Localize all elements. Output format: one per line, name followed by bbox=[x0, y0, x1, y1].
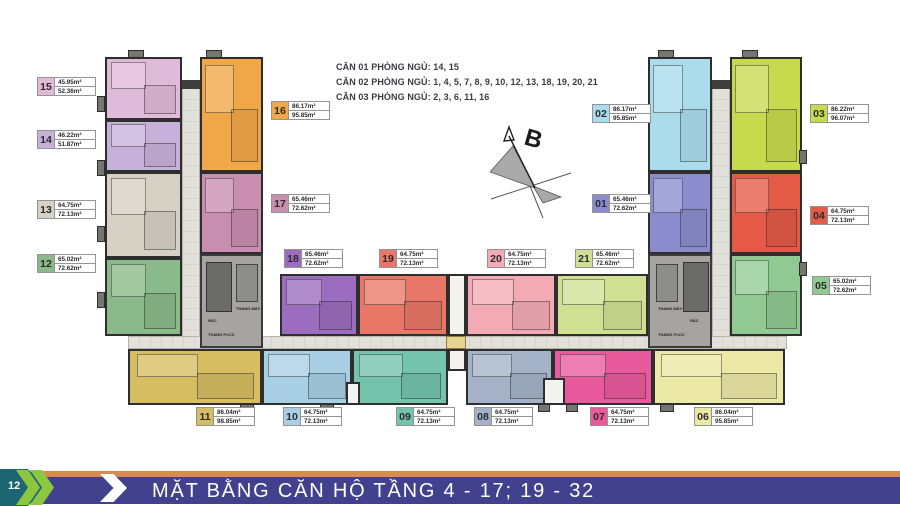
unit-area-gross: 72.62m² bbox=[302, 259, 342, 267]
unit-number: 13 bbox=[38, 201, 55, 218]
unit-area-net: 65.02m² bbox=[55, 255, 95, 264]
unit-area-net: 65.46m² bbox=[302, 250, 342, 259]
unit-area-gross: 72.13m² bbox=[608, 417, 648, 425]
unit-03-label: 03 86.22m² 96.07m² bbox=[810, 104, 869, 123]
unit-area-gross: 72.62m² bbox=[55, 264, 95, 272]
unit-area-gross: 96.07m² bbox=[828, 114, 868, 122]
unit-area-gross: 72.62m² bbox=[289, 204, 329, 212]
unit-number: 09 bbox=[397, 408, 414, 425]
unit-area-net: 65.02m² bbox=[830, 277, 870, 286]
unit-number: 15 bbox=[38, 78, 55, 95]
unit-number: 07 bbox=[591, 408, 608, 425]
unit-area-gross: 72.62m² bbox=[830, 286, 870, 294]
unit-number: 21 bbox=[576, 250, 593, 267]
unit-labels: 01 65.46m² 72.62m² 02 86.17m² 95.85m² 03… bbox=[0, 0, 900, 460]
unit-04-label: 04 64.75m² 72.13m² bbox=[810, 206, 869, 225]
unit-06-label: 06 86.04m² 95.85m² bbox=[694, 407, 753, 426]
unit-number: 06 bbox=[695, 408, 712, 425]
unit-01-label: 01 65.46m² 72.62m² bbox=[592, 194, 651, 213]
unit-area-net: 65.46m² bbox=[610, 195, 650, 204]
unit-area-gross: 72.13m² bbox=[55, 210, 95, 218]
unit-number: 17 bbox=[272, 195, 289, 212]
unit-07-label: 07 64.75m² 72.13m² bbox=[590, 407, 649, 426]
unit-number: 14 bbox=[38, 131, 55, 148]
unit-number: 10 bbox=[284, 408, 301, 425]
unit-number: 01 bbox=[593, 195, 610, 212]
unit-area-net: 64.75m² bbox=[608, 408, 648, 417]
unit-area-gross: 72.13m² bbox=[301, 417, 341, 425]
unit-area-gross: 72.13m² bbox=[828, 216, 868, 224]
unit-13-label: 13 64.75m² 72.13m² bbox=[37, 200, 96, 219]
unit-area-net: 86.17m² bbox=[610, 105, 650, 114]
unit-number: 02 bbox=[593, 105, 610, 122]
unit-area-net: 46.22m² bbox=[55, 131, 95, 140]
unit-area-gross: 72.13m² bbox=[397, 259, 437, 267]
unit-area-gross: 52.36m² bbox=[55, 87, 95, 95]
unit-area-gross: 51.87m² bbox=[55, 140, 95, 148]
unit-area-net: 45.95m² bbox=[55, 78, 95, 87]
unit-area-gross: 72.13m² bbox=[505, 259, 545, 267]
unit-area-net: 64.75m² bbox=[492, 408, 532, 417]
unit-09-label: 09 64.75m² 72.13m² bbox=[396, 407, 455, 426]
unit-21-label: 21 65.46m² 72.62m² bbox=[575, 249, 634, 268]
unit-area-net: 86.04m² bbox=[214, 408, 254, 417]
unit-number: 05 bbox=[813, 277, 830, 294]
unit-14-label: 14 46.22m² 51.87m² bbox=[37, 130, 96, 149]
unit-area-gross: 98.85m² bbox=[214, 417, 254, 425]
unit-11-label: 11 86.04m² 98.85m² bbox=[196, 407, 255, 426]
unit-number: 18 bbox=[285, 250, 302, 267]
unit-15-label: 15 45.95m² 52.36m² bbox=[37, 77, 96, 96]
unit-number: 16 bbox=[272, 102, 289, 119]
unit-20-label: 20 64.75m² 72.13m² bbox=[487, 249, 546, 268]
unit-number: 19 bbox=[380, 250, 397, 267]
unit-area-net: 86.04m² bbox=[712, 408, 752, 417]
unit-area-gross: 72.62m² bbox=[593, 259, 633, 267]
unit-number: 08 bbox=[475, 408, 492, 425]
unit-number: 12 bbox=[38, 255, 55, 272]
unit-area-net: 64.75m² bbox=[397, 250, 437, 259]
page-number: 12 bbox=[8, 480, 20, 492]
unit-02-label: 02 86.17m² 95.85m² bbox=[592, 104, 651, 123]
unit-12-label: 12 65.02m² 72.62m² bbox=[37, 254, 96, 273]
unit-number: 03 bbox=[811, 105, 828, 122]
unit-area-net: 64.75m² bbox=[828, 207, 868, 216]
unit-10-label: 10 64.75m² 72.13m² bbox=[283, 407, 342, 426]
unit-19-label: 19 64.75m² 72.13m² bbox=[379, 249, 438, 268]
unit-08-label: 08 64.75m² 72.13m² bbox=[474, 407, 533, 426]
unit-area-gross: 72.62m² bbox=[610, 204, 650, 212]
unit-area-net: 64.75m² bbox=[55, 201, 95, 210]
unit-05-label: 05 65.02m² 72.62m² bbox=[812, 276, 871, 295]
page-title: MẶT BẰNG CĂN HỘ TẦNG 4 - 17; 19 - 32 bbox=[152, 480, 595, 503]
unit-area-gross: 95.85m² bbox=[712, 417, 752, 425]
unit-16-label: 16 86.17m² 95.85m² bbox=[271, 101, 330, 120]
unit-area-net: 86.22m² bbox=[828, 105, 868, 114]
unit-area-net: 65.46m² bbox=[289, 195, 329, 204]
unit-number: 11 bbox=[197, 408, 214, 425]
unit-17-label: 17 65.46m² 72.62m² bbox=[271, 194, 330, 213]
unit-area-gross: 72.13m² bbox=[492, 417, 532, 425]
unit-number: 20 bbox=[488, 250, 505, 267]
unit-area-net: 64.75m² bbox=[414, 408, 454, 417]
unit-area-gross: 95.85m² bbox=[610, 114, 650, 122]
unit-area-gross: 95.85m² bbox=[289, 111, 329, 119]
unit-area-net: 64.75m² bbox=[301, 408, 341, 417]
unit-area-gross: 72.13m² bbox=[414, 417, 454, 425]
unit-area-net: 64.75m² bbox=[505, 250, 545, 259]
unit-area-net: 65.46m² bbox=[593, 250, 633, 259]
unit-18-label: 18 65.46m² 72.62m² bbox=[284, 249, 343, 268]
unit-number: 04 bbox=[811, 207, 828, 224]
unit-area-net: 86.17m² bbox=[289, 102, 329, 111]
